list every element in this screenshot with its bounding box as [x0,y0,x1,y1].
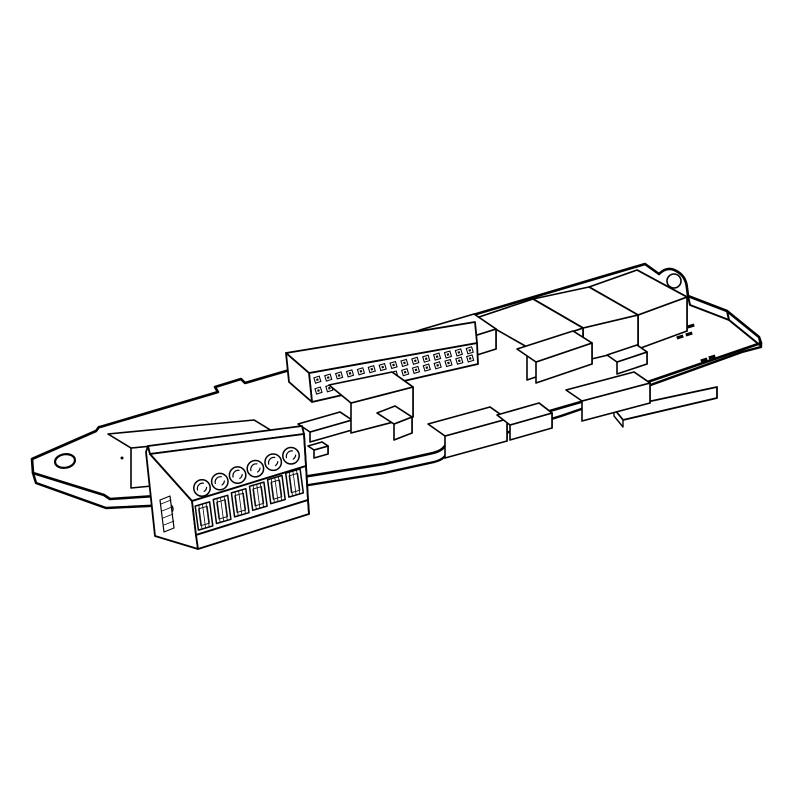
illustration-canvas [0,0,800,800]
pin1-dot [121,457,124,460]
mounting-hole-right [667,274,681,288]
terminal-screw [212,473,228,489]
terminal-screw [265,454,281,470]
terminal-screw [229,467,245,483]
terminal-screw [247,460,263,476]
pcb-line-drawing [0,0,800,800]
terminal-screw [194,480,210,496]
terminal-screw [283,448,299,464]
